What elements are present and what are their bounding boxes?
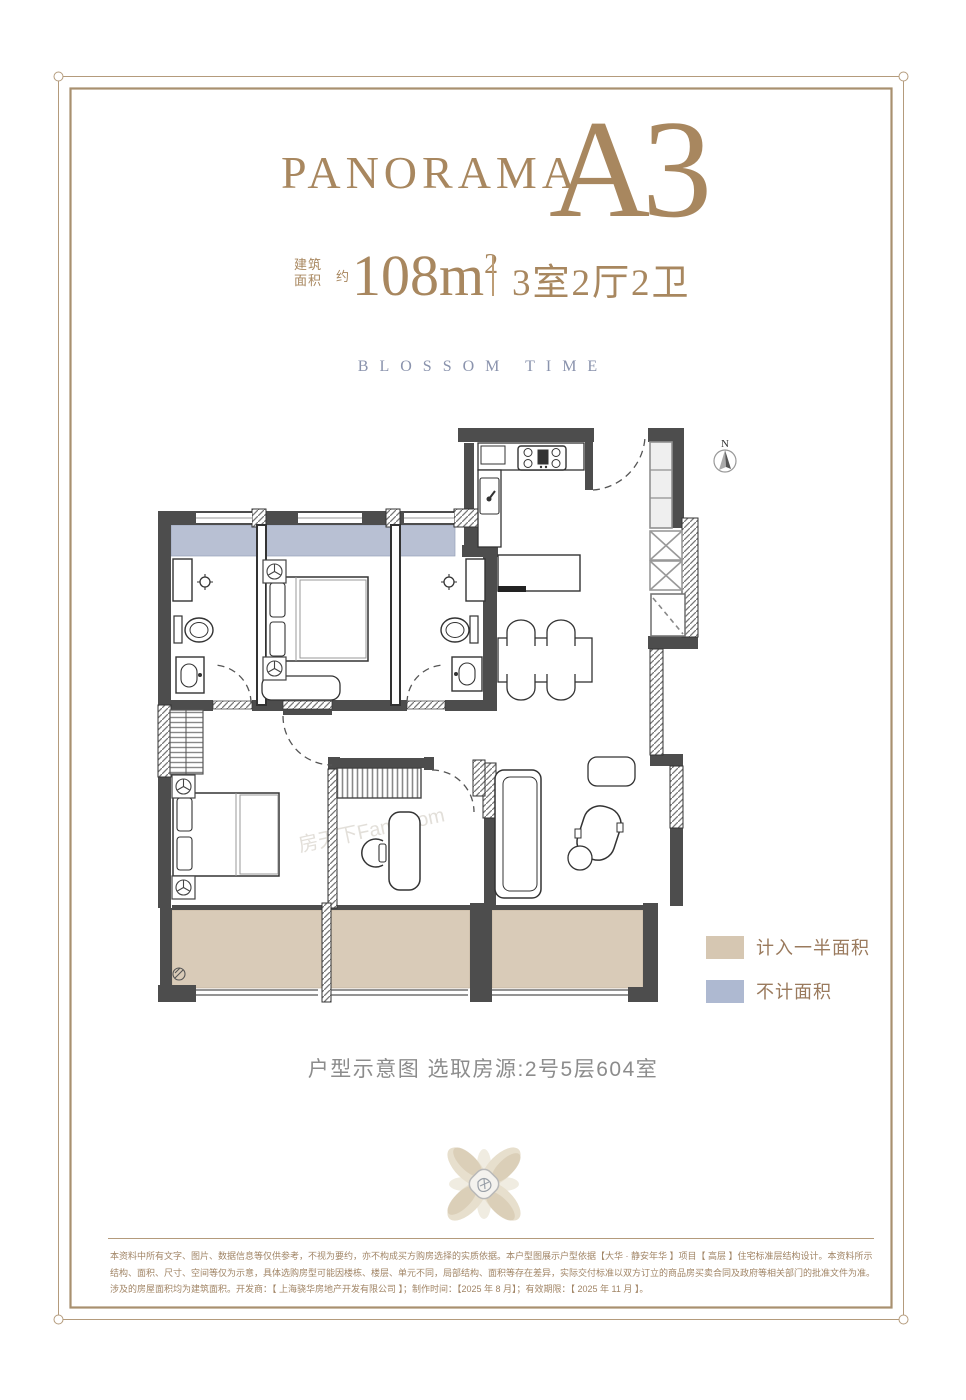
svg-text:N: N	[721, 438, 729, 450]
area-label-bottom: 面积	[294, 273, 322, 289]
pillow	[177, 798, 192, 831]
corner-loop-icon	[54, 1315, 63, 1324]
fridge-cabinet	[650, 442, 672, 528]
corner-loop-icon	[899, 1315, 908, 1324]
subtitle: BLOSSOM TIME	[0, 358, 966, 376]
brand-title: PANORAMA	[281, 146, 580, 199]
living-dining	[495, 555, 635, 898]
blanket	[240, 795, 278, 874]
header-divider	[492, 256, 494, 296]
bath-cabinet	[466, 559, 485, 601]
bedroom-bottom-left	[170, 710, 279, 899]
pillow	[270, 583, 285, 617]
bedroom-top	[262, 560, 368, 700]
sink	[176, 657, 204, 693]
disclaimer-line: 本资料中所有文字、图片、数据信息等仅供参考，不视为要约，亦不构成买方购房选择的实…	[110, 1248, 872, 1265]
rooms-spec: 3室2厅2卫	[512, 252, 691, 306]
legend-item-half-area: 计入一半面积	[706, 934, 870, 960]
floor-plan: 房天下Fang.com 房天下Fang.com	[150, 415, 750, 1015]
flower-ornament-icon	[434, 1138, 534, 1234]
disclaimer-divider	[108, 1238, 874, 1239]
side-stool	[568, 846, 592, 870]
entry-door-arc	[593, 437, 645, 490]
legend-label: 计入一半面积	[756, 934, 870, 960]
legend-item-excluded-area: 不计面积	[706, 978, 832, 1004]
legend-label: 不计面积	[756, 978, 832, 1004]
kitchen-stove	[518, 446, 566, 470]
area-label: 建筑 面积	[294, 257, 322, 290]
desk	[389, 812, 420, 890]
blanket	[300, 580, 366, 658]
plan-caption: 户型示意图 选取房源:2号5层604室	[0, 1053, 966, 1083]
area-approx: 约	[336, 266, 349, 285]
pillow	[270, 622, 285, 656]
bathroom-right	[441, 559, 485, 691]
north-compass-icon: N	[714, 438, 736, 472]
sink	[452, 657, 482, 691]
pillow	[177, 837, 192, 870]
kitchen-sink	[480, 478, 499, 514]
legend-swatch-half-area	[706, 936, 744, 959]
excluded-area-zones	[171, 525, 455, 556]
kitchen-cabinet	[481, 446, 505, 464]
kitchen	[478, 443, 584, 547]
kitchen-island	[498, 555, 580, 591]
toilet	[174, 616, 213, 643]
area-number: 108m	[352, 243, 484, 308]
bathroom-left	[173, 559, 213, 693]
corner-loop-icon	[54, 72, 63, 81]
shower-icon	[197, 574, 213, 590]
shower-icon	[441, 574, 457, 590]
floorplan-poster: PANORAMA A3 建筑 面积 约 108m2 3室2厅2卫 BLOSSOM…	[0, 0, 966, 1400]
ac-unit-icon	[172, 876, 195, 899]
ac-unit-icon	[263, 657, 286, 680]
toilet	[441, 616, 478, 643]
half-area-balconies	[172, 910, 643, 988]
bath-cabinet	[173, 559, 192, 601]
closet	[337, 768, 421, 798]
unit-name: A3	[549, 100, 704, 240]
area-label-top: 建筑	[294, 257, 322, 273]
disclaimer-line: 涉及的房屋面积均为建筑面积。开发商：【 上海骁华房地产开发有限公司 】；制作时间…	[110, 1281, 872, 1298]
ac-unit-icon	[263, 560, 286, 583]
disclaimer-line: 结构、面积、尺寸、空间等仅为示意，具体选购房型可能因楼栋、楼层、单元不同，局部结…	[110, 1265, 872, 1282]
coffee-table	[588, 757, 635, 786]
ac-unit-icon	[172, 775, 195, 798]
corner-loop-icon	[899, 72, 908, 81]
legend-swatch-excluded-area	[706, 980, 744, 1003]
shaft	[650, 531, 685, 636]
disclaimer: 本资料中所有文字、图片、数据信息等仅供参考，不视为要约，亦不构成买方购房选择的实…	[110, 1248, 872, 1298]
area-value: 108m2	[352, 247, 498, 305]
